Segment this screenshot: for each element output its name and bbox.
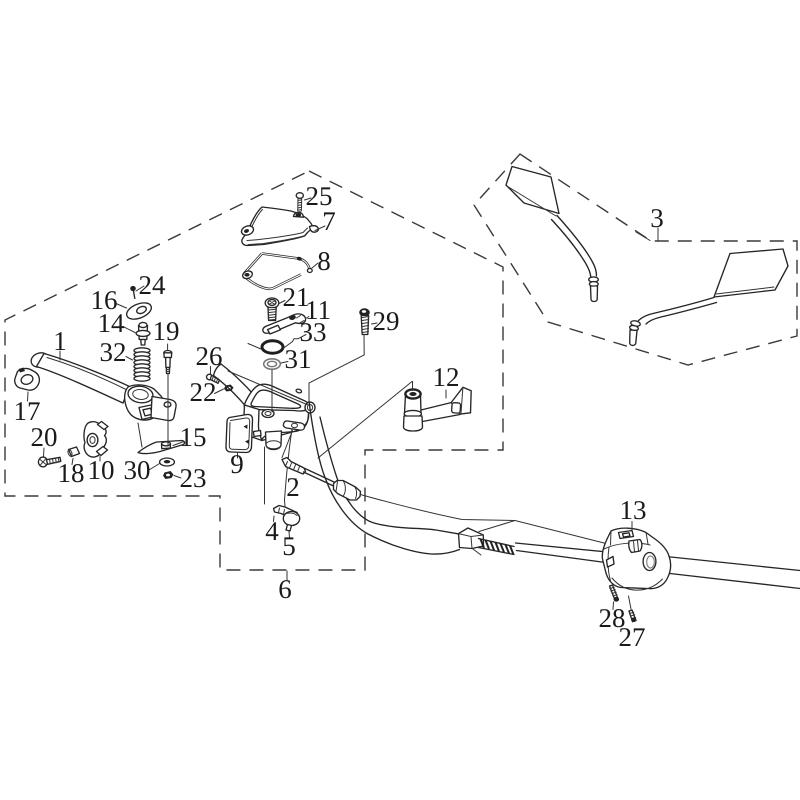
svg-text:9: 9 xyxy=(230,449,244,479)
svg-text:20: 20 xyxy=(31,422,58,452)
svg-text:33: 33 xyxy=(300,317,327,347)
svg-text:23: 23 xyxy=(180,463,207,493)
svg-text:3: 3 xyxy=(650,203,664,233)
svg-text:5: 5 xyxy=(282,531,296,561)
svg-text:6: 6 xyxy=(278,574,292,604)
svg-text:25: 25 xyxy=(306,181,333,211)
svg-text:15: 15 xyxy=(180,422,207,452)
svg-text:31: 31 xyxy=(285,344,312,374)
svg-text:16: 16 xyxy=(91,285,118,315)
svg-text:8: 8 xyxy=(317,246,331,276)
svg-text:1: 1 xyxy=(53,326,67,356)
svg-text:24: 24 xyxy=(139,270,167,300)
svg-text:18: 18 xyxy=(58,458,85,488)
svg-text:32: 32 xyxy=(100,337,127,367)
svg-text:13: 13 xyxy=(620,495,647,525)
svg-text:29: 29 xyxy=(373,306,400,336)
svg-text:12: 12 xyxy=(433,362,460,392)
svg-text:19: 19 xyxy=(153,316,180,346)
svg-text:28: 28 xyxy=(599,603,626,633)
svg-text:21: 21 xyxy=(283,282,310,312)
svg-text:4: 4 xyxy=(265,516,279,546)
svg-text:30: 30 xyxy=(124,455,151,485)
svg-text:2: 2 xyxy=(286,472,300,502)
svg-text:22: 22 xyxy=(190,377,217,407)
svg-text:26: 26 xyxy=(196,341,223,371)
svg-text:10: 10 xyxy=(88,455,115,485)
